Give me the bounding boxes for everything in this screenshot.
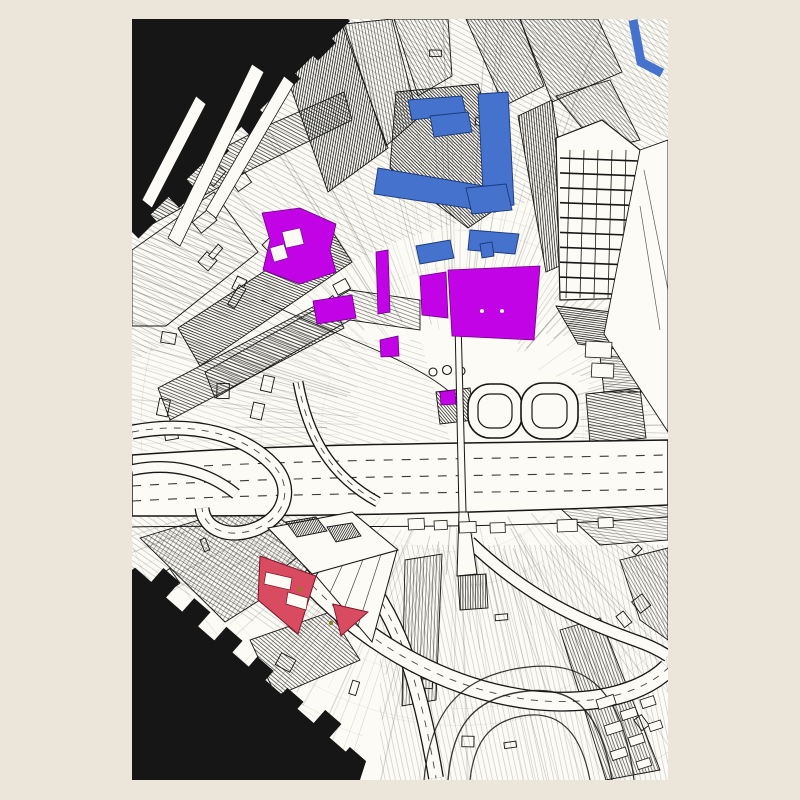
drawing-area bbox=[0, 0, 800, 800]
city-illustration bbox=[0, 0, 800, 800]
art-print bbox=[0, 0, 800, 800]
background-hatching bbox=[0, 0, 800, 800]
